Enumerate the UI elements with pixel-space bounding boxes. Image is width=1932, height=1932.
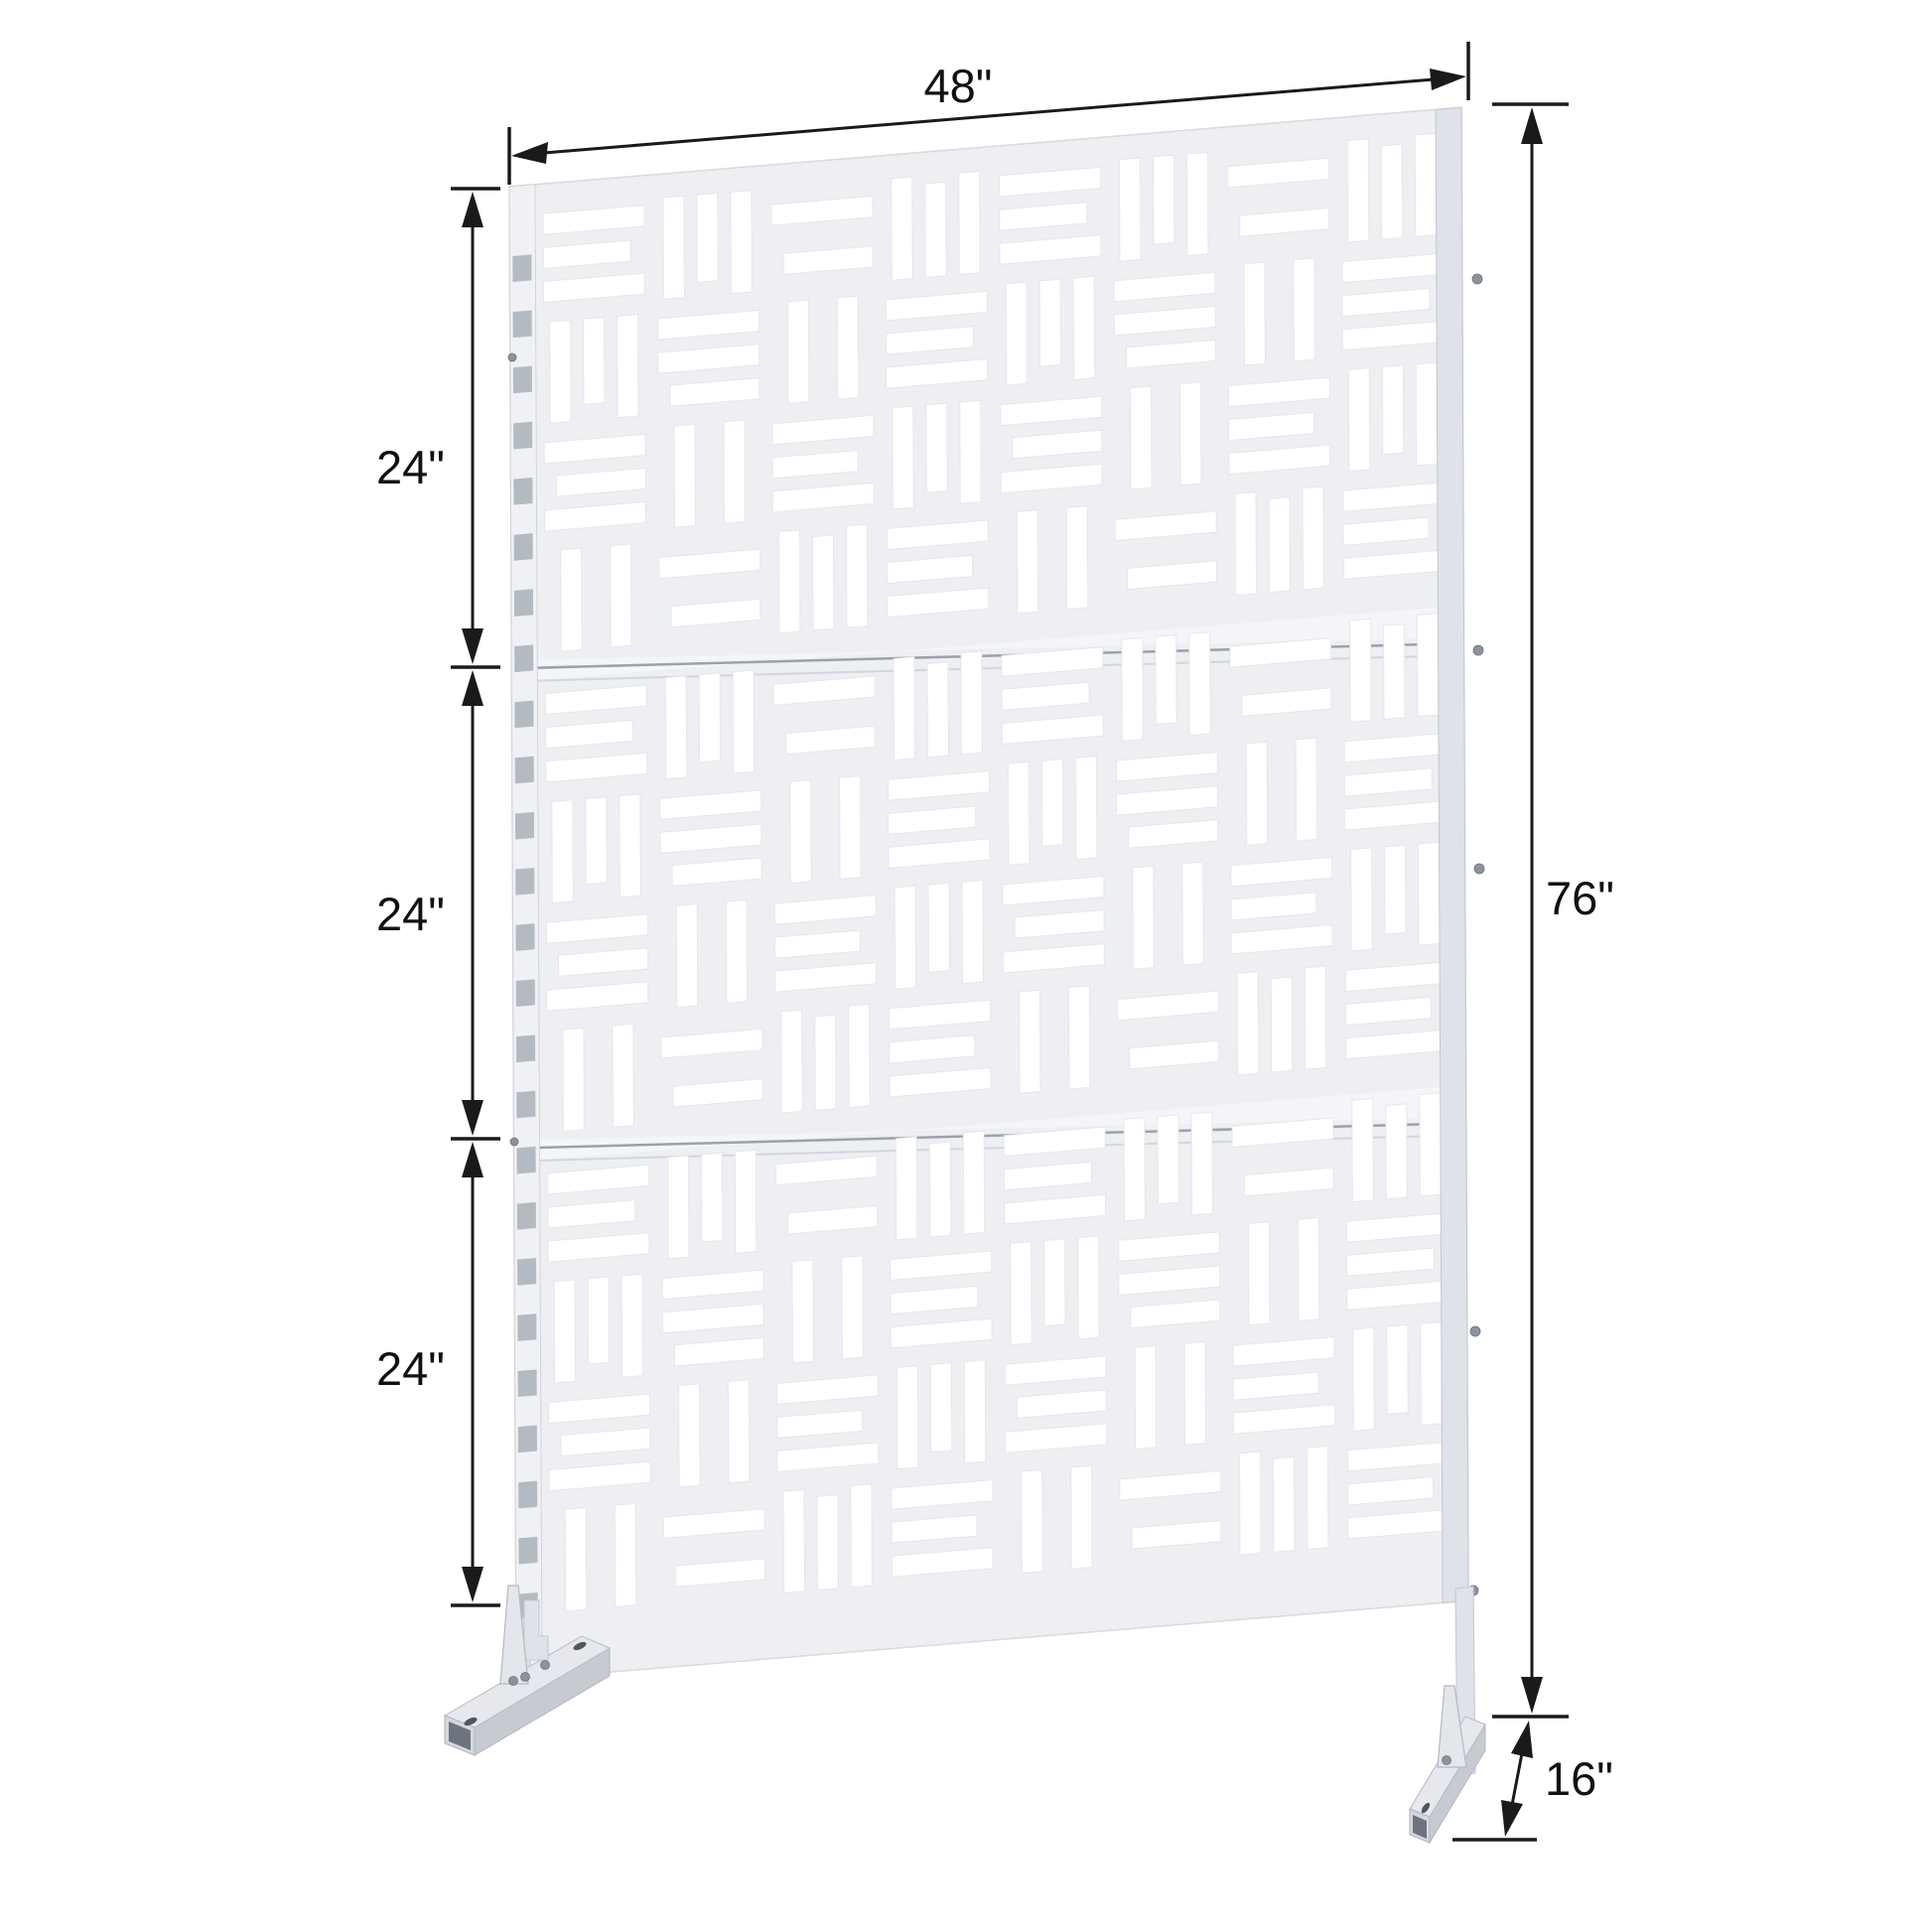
screen-panel — [509, 107, 1468, 1680]
panel-section-1 — [537, 127, 1438, 658]
dimension-section-2: 24" — [376, 667, 500, 1136]
product-dimension-diagram: 48" 76" 24" 24" 24" 16" — [0, 0, 1932, 1932]
dimension-diagram-canvas: 48" 76" 24" 24" 24" 16" — [0, 0, 1932, 1932]
dimension-section-1: 24" — [376, 189, 500, 664]
section-1-dimension-label: 24" — [376, 441, 445, 493]
depth-dimension-label: 16" — [1545, 1752, 1613, 1805]
dimension-section-3: 24" — [376, 1139, 500, 1605]
section-3-dimension-label: 24" — [376, 1342, 445, 1395]
panel-section-3 — [542, 1087, 1443, 1620]
panel-section-2 — [539, 608, 1440, 1139]
dimension-height: 76" — [1492, 104, 1614, 1717]
width-dimension-label: 48" — [924, 60, 993, 112]
right-post-bolts — [1468, 274, 1484, 1595]
height-dimension-label: 76" — [1546, 872, 1614, 924]
section-2-dimension-label: 24" — [376, 888, 445, 940]
